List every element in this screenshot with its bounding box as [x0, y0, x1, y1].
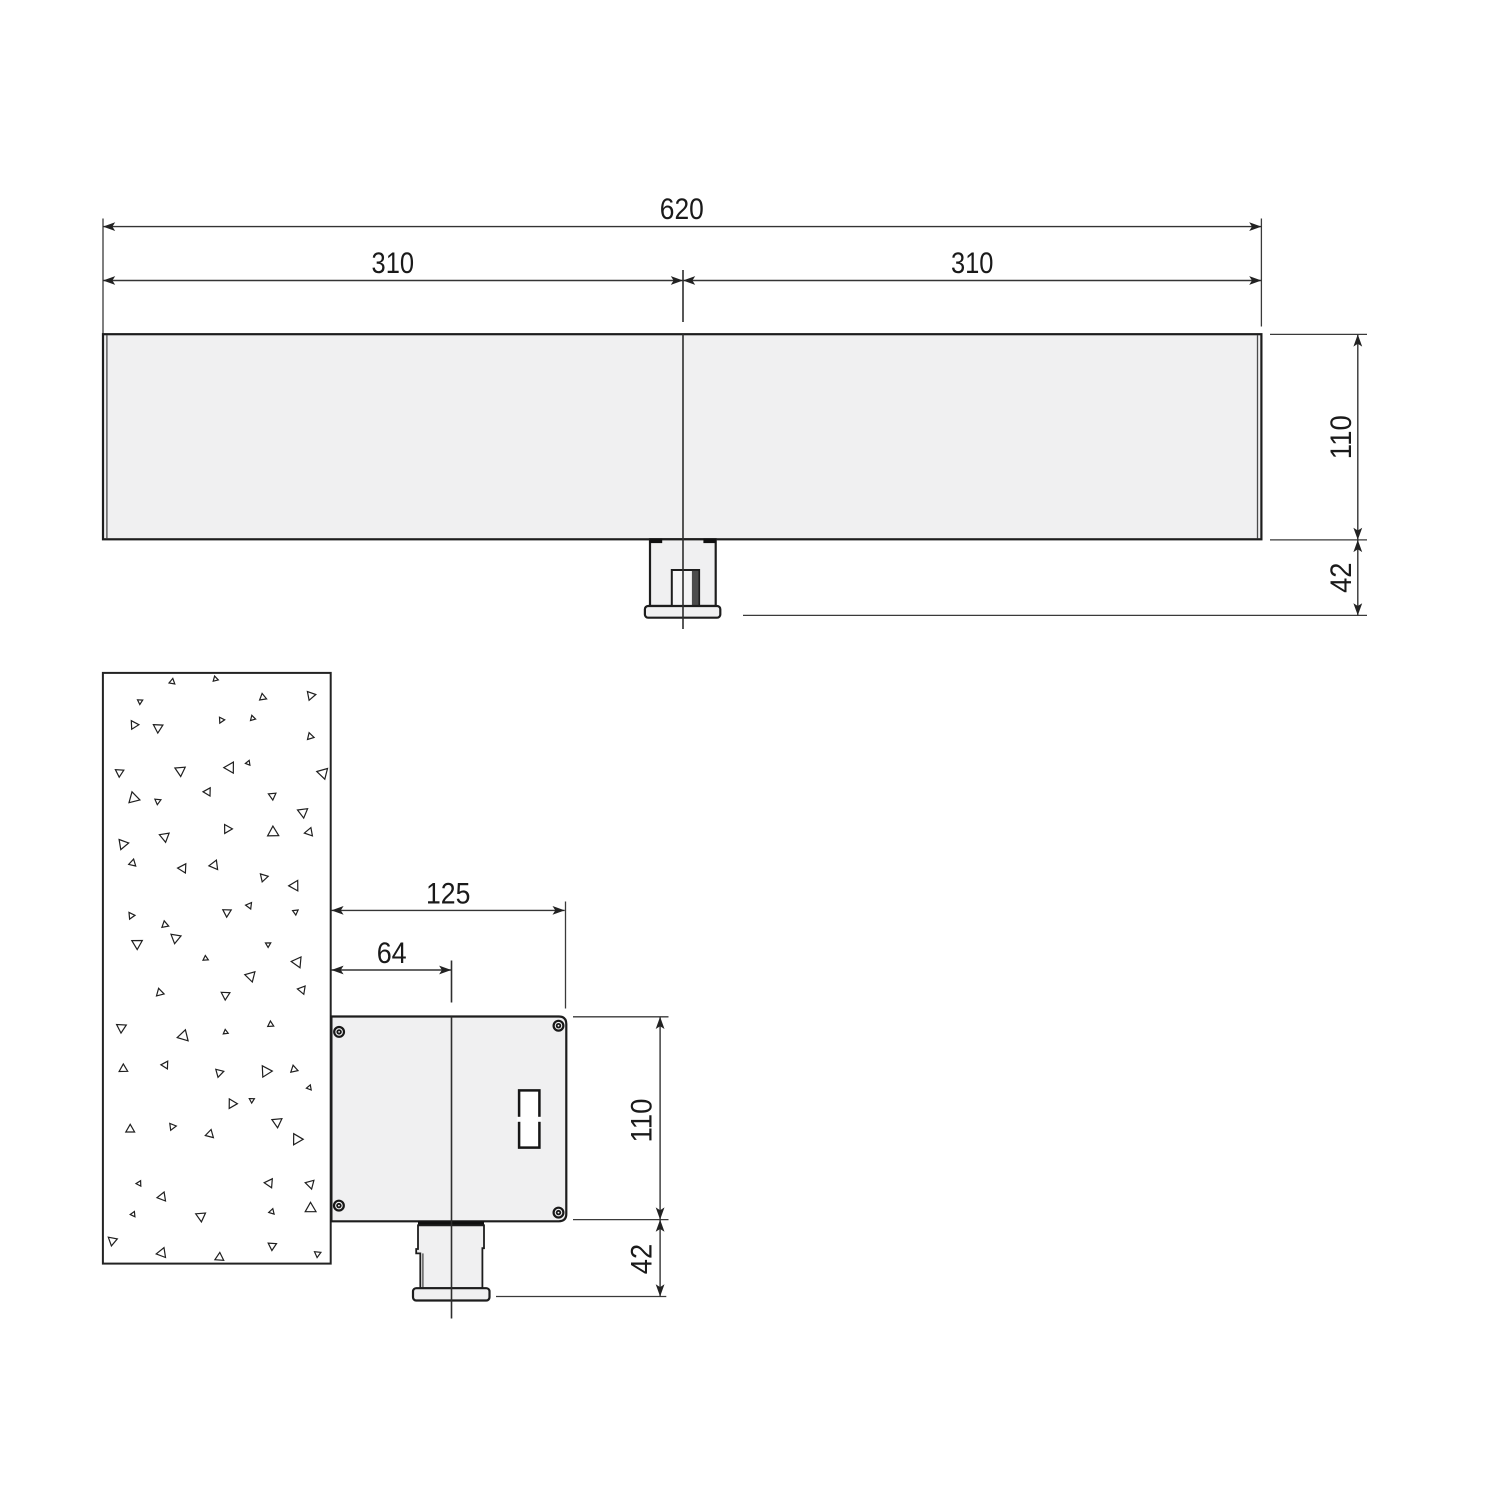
svg-text:310: 310 [951, 247, 994, 280]
svg-text:42: 42 [1325, 563, 1358, 593]
svg-text:110: 110 [626, 1099, 659, 1143]
svg-text:110: 110 [1325, 415, 1358, 459]
svg-text:42: 42 [626, 1244, 659, 1274]
svg-text:64: 64 [377, 937, 407, 970]
svg-text:125: 125 [426, 877, 470, 910]
svg-text:310: 310 [372, 247, 415, 280]
svg-text:620: 620 [660, 193, 704, 226]
